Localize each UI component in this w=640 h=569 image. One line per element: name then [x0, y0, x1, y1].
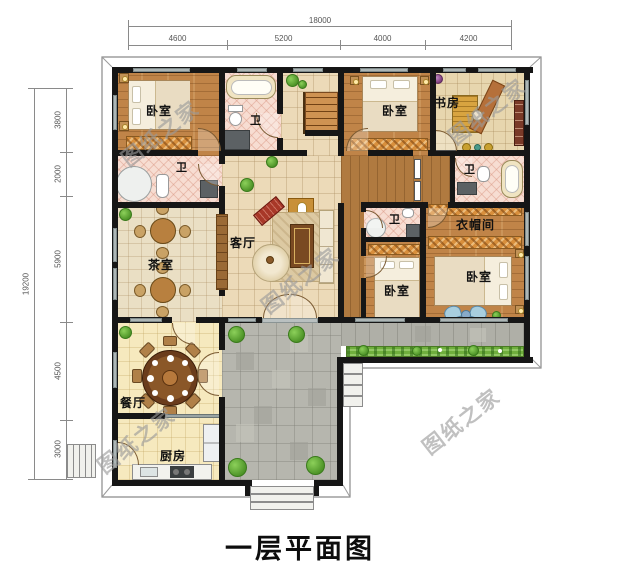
dim-line-left-total — [34, 88, 35, 480]
nightstand — [119, 121, 129, 131]
stove — [170, 466, 194, 478]
dining-chair — [163, 336, 177, 346]
window — [360, 68, 408, 72]
wall — [448, 202, 530, 208]
window — [237, 68, 267, 72]
window — [440, 318, 508, 322]
dim-top-seg-2: 4000 — [340, 34, 425, 43]
room-label-bath-left: 卫 — [176, 159, 187, 175]
dim-tick — [60, 196, 73, 197]
window — [355, 318, 405, 322]
dim-tick — [60, 420, 73, 421]
dim-line-top-total — [128, 26, 512, 27]
wall — [112, 480, 252, 486]
wall — [219, 317, 225, 350]
flower-dots — [438, 348, 442, 352]
woven-mat — [428, 236, 522, 249]
wall — [305, 130, 341, 136]
woven-mat — [368, 244, 420, 255]
window — [113, 95, 117, 130]
toilet — [156, 174, 169, 198]
wall — [277, 138, 283, 156]
staircase — [305, 92, 338, 134]
fridge-cabinet — [203, 424, 220, 462]
wall — [338, 357, 533, 363]
sink — [402, 208, 414, 218]
tea-chair — [179, 284, 191, 297]
wall — [420, 202, 426, 322]
east-steps — [343, 363, 363, 374]
wall — [219, 397, 225, 486]
room-label-kitchen: 厨房 — [160, 447, 186, 464]
room-label-bath-top: 卫 — [250, 112, 261, 128]
corridor-double-door-leaf — [414, 181, 421, 201]
wall — [361, 278, 366, 322]
dim-left-seg-2: 5900 — [54, 250, 63, 268]
window — [443, 68, 466, 72]
tea-chair — [179, 225, 191, 238]
dim-line-top-seg — [128, 45, 512, 46]
east-steps — [343, 396, 363, 407]
dim-left-seg-4: 3000 — [54, 440, 63, 458]
plant — [298, 80, 307, 89]
dim-tick — [60, 322, 73, 323]
wall — [338, 67, 344, 156]
entrance-threshold — [262, 318, 318, 323]
west-stairs — [66, 444, 96, 478]
dim-left-seg-0: 3800 — [54, 111, 63, 129]
floor-plan-canvas: 卧室 卫 卧室 书房 卫 茶室 客厅 卫 卫 衣帽间 卧室 卧室 餐厅 厨房 1… — [0, 0, 640, 569]
kitchen-sink — [140, 467, 158, 477]
plant — [240, 178, 254, 192]
bathtub — [226, 75, 276, 99]
wall — [361, 237, 423, 242]
paver-patch — [308, 388, 326, 406]
south-steps — [250, 486, 314, 494]
nightstand — [420, 76, 429, 85]
room-label-study: 书房 — [434, 94, 460, 111]
east-steps — [343, 385, 363, 396]
plant — [119, 326, 132, 339]
paver-patch — [236, 352, 254, 370]
paver-patch — [470, 328, 486, 342]
dim-top-total: 18000 — [128, 16, 512, 25]
bath-cabinet — [224, 130, 250, 150]
floor-corridor-top — [341, 156, 453, 206]
wall — [219, 150, 307, 156]
plant — [119, 208, 132, 221]
wall — [115, 202, 222, 208]
wall — [361, 202, 428, 208]
step-cheek — [245, 480, 250, 496]
paver-patch — [272, 370, 290, 388]
wall — [361, 228, 366, 256]
bush — [468, 345, 479, 356]
window — [113, 228, 117, 262]
tea-chair — [134, 225, 146, 238]
bush — [228, 326, 245, 343]
tea-table — [150, 218, 176, 244]
corridor-double-door-leaf — [414, 159, 421, 179]
dim-tick — [28, 88, 73, 89]
bush — [288, 326, 305, 343]
flower-dots — [498, 349, 502, 353]
south-steps — [250, 502, 314, 510]
step-cheek — [314, 480, 319, 496]
window — [130, 318, 162, 322]
bush — [306, 456, 325, 475]
south-steps — [250, 494, 314, 502]
dim-left-total: 19200 — [22, 273, 31, 295]
wall — [277, 67, 283, 114]
dim-left-seg-1: 2000 — [54, 165, 63, 183]
room-label-dining: 餐厅 — [120, 394, 146, 411]
vanity — [457, 182, 477, 195]
walkway-paving — [341, 322, 530, 346]
window — [113, 268, 117, 300]
dim-top-seg-3: 4200 — [425, 34, 512, 43]
toilet-bowl — [229, 112, 242, 126]
wall — [219, 156, 225, 164]
room-label-cloakroom: 衣帽间 — [456, 216, 495, 233]
wall — [219, 67, 225, 156]
dim-top-seg-0: 4600 — [128, 34, 227, 43]
dining-table — [142, 350, 198, 406]
bush — [358, 345, 369, 356]
dim-line-left-seg — [66, 88, 67, 480]
tall-cabinet — [216, 214, 228, 290]
room-label-tea: 茶室 — [148, 256, 174, 273]
dim-tick — [60, 152, 73, 153]
east-steps — [343, 374, 363, 385]
window — [525, 256, 529, 300]
room-label-bedroom-mid: 卧室 — [384, 282, 410, 299]
wall — [450, 156, 455, 203]
toilet — [228, 105, 243, 112]
plant — [266, 156, 278, 168]
teapot — [266, 256, 274, 264]
paver-patch — [254, 406, 272, 424]
room-label-bedroom-right: 卧室 — [466, 268, 492, 285]
nightstand — [515, 249, 524, 258]
window — [293, 68, 323, 72]
sink — [477, 166, 490, 182]
vanity — [406, 224, 420, 238]
room-label-bath-right-top: 卫 — [464, 161, 475, 177]
nightstand — [515, 305, 524, 314]
window — [133, 68, 190, 72]
dim-tick — [28, 479, 73, 480]
dim-top-seg-1: 5200 — [227, 34, 340, 43]
bush — [412, 346, 422, 356]
window — [478, 68, 516, 72]
paver-patch — [290, 442, 308, 460]
window — [228, 318, 256, 322]
room-label-bath-mid: 卫 — [389, 211, 400, 227]
tea-table — [150, 277, 176, 303]
room-label-living: 客厅 — [230, 234, 256, 251]
dining-chair — [132, 369, 142, 383]
room-label-bedroom-top-2: 卧室 — [382, 102, 408, 119]
dim-left-seg-3: 4500 — [54, 362, 63, 380]
nightstand — [119, 73, 129, 83]
window — [525, 212, 529, 246]
paver-patch — [415, 326, 431, 342]
plan-title: 一层平面图 — [150, 527, 450, 566]
stair-rail — [303, 92, 305, 134]
bush — [228, 458, 247, 477]
bathtub — [501, 160, 523, 198]
wall — [368, 150, 413, 156]
paver-patch — [236, 424, 254, 442]
tea-chair — [134, 284, 146, 297]
nightstand — [350, 76, 359, 85]
window — [113, 352, 117, 388]
